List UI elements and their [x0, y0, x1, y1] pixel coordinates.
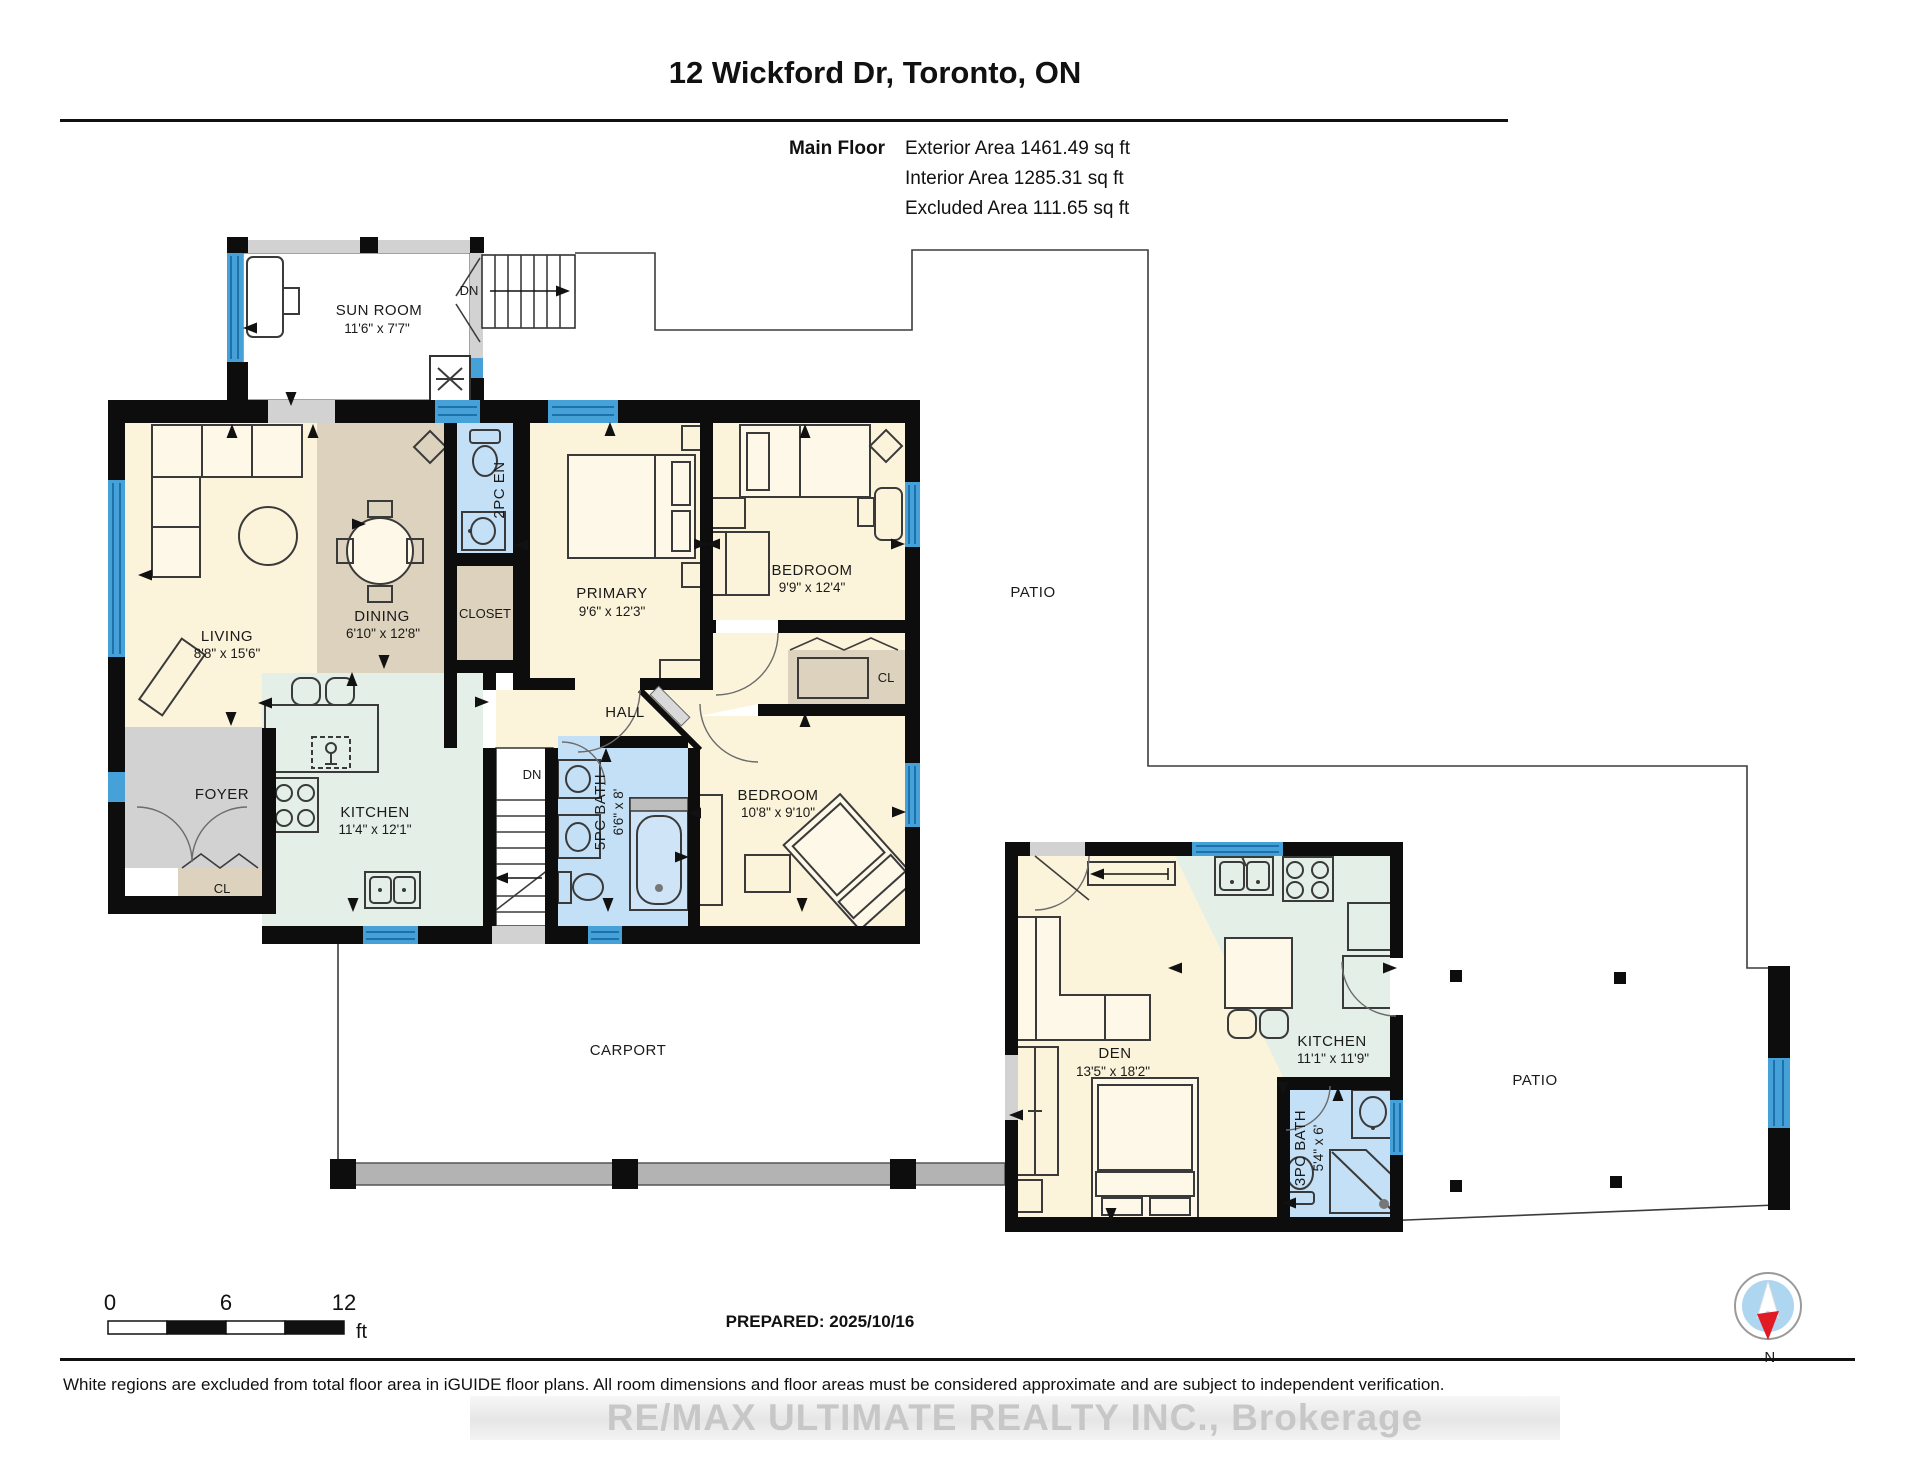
brokerage-watermark: RE/MAX ULTIMATE REALTY INC., Brokerage — [470, 1396, 1560, 1440]
furnace-icon — [430, 356, 470, 402]
scale-bar: 0 6 12 ft — [104, 1290, 368, 1343]
den-bed-icon — [1092, 1078, 1198, 1218]
hall-label: HALL — [605, 704, 645, 721]
kitchen-label: KITCHEN — [340, 804, 409, 821]
interior-area: Interior Area 1285.31 sq ft — [905, 168, 1325, 190]
living-dims: 8'8" x 15'6" — [194, 646, 261, 661]
kitchen2-dims: 11'1" x 11'9" — [1297, 1051, 1369, 1066]
header-divider — [60, 119, 1508, 122]
bedroom3-label: BEDROOM — [737, 787, 818, 804]
floor-plan-page: SUN ROOM 11'6" x 7'7" DN LIVING 8'8" x 1… — [0, 0, 1920, 1484]
bath3-label: 3PC BATH — [1292, 1110, 1309, 1186]
sun-room-label: SUN ROOM — [336, 302, 423, 319]
disclaimer-text: White regions are excluded from total fl… — [63, 1375, 1463, 1395]
patio-lower-wall — [1768, 966, 1790, 1210]
scale-unit: ft — [356, 1321, 368, 1343]
hall-closet-label: CL — [878, 670, 895, 685]
compass-icon: N — [1735, 1273, 1801, 1366]
patio-lower-label: PATIO — [1512, 1072, 1557, 1089]
bedroom3-dims: 10'8" x 9'10" — [741, 805, 815, 820]
dining-dims: 6'10" x 12'8" — [346, 626, 420, 641]
stairs-main-dn-label: DN — [523, 767, 542, 782]
kitchen2-label: KITCHEN — [1297, 1033, 1366, 1050]
bath5-label: 5PC BATH — [592, 774, 609, 850]
floor-plan-drawing: SUN ROOM 11'6" x 7'7" DN LIVING 8'8" x 1… — [0, 0, 1920, 1484]
dining-label: DINING — [354, 608, 410, 625]
sun-room-dims: 11'6" x 7'7" — [344, 321, 410, 336]
closet-label: CLOSET — [459, 606, 511, 621]
scale-0: 0 — [104, 1290, 116, 1315]
bedroom2-dims: 9'9" x 12'4" — [779, 580, 846, 595]
foyer-label: FOYER — [195, 786, 249, 803]
foyer-closet-label: CL — [214, 881, 231, 896]
living-label: LIVING — [201, 628, 253, 645]
stairs-upper-dn-label: DN — [460, 283, 479, 298]
prepared-date: PREPARED: 2025/10/16 — [620, 1312, 1020, 1332]
bath5-dims: 6'6" x 8' — [611, 789, 626, 836]
bath3-dims: 5'4" x 6' — [1311, 1125, 1326, 1172]
den-dims: 13'5" x 18'2" — [1076, 1064, 1150, 1079]
scale-12: 12 — [332, 1290, 356, 1315]
sun-room — [227, 237, 484, 402]
footer-divider — [60, 1358, 1855, 1361]
excluded-area: Excluded Area 111.65 sq ft — [905, 198, 1325, 220]
carport-label: CARPORT — [590, 1042, 667, 1059]
floor-label: Main Floor — [640, 138, 885, 160]
bedroom2-label: BEDROOM — [771, 562, 852, 579]
two-pc-en-label: 2PC EN — [491, 461, 508, 518]
primary-label: PRIMARY — [576, 585, 648, 602]
den-label: DEN — [1098, 1045, 1131, 1062]
primary-dims: 9'6" x 12'3" — [579, 604, 646, 619]
patio-upper-label: PATIO — [1010, 584, 1055, 601]
kitchen-dims: 11'4" x 12'1" — [338, 822, 411, 837]
exterior-area: Exterior Area 1461.49 sq ft — [905, 138, 1325, 160]
page-title: 12 Wickford Dr, Toronto, ON — [60, 55, 1690, 91]
stairs-upper — [482, 255, 575, 328]
scale-6: 6 — [220, 1290, 232, 1315]
